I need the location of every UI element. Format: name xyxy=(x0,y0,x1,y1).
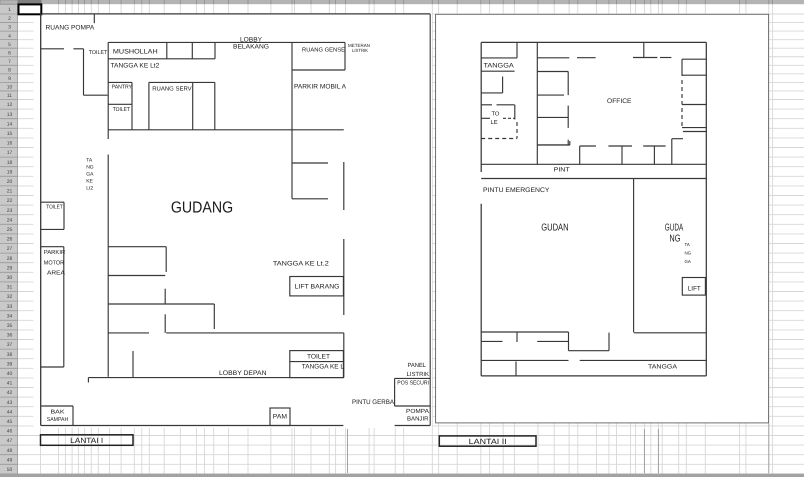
svg-text:TOILET: TOILET xyxy=(89,50,108,56)
svg-text:15: 15 xyxy=(7,131,13,137)
svg-text:34: 34 xyxy=(7,313,13,319)
svg-text:PANTRY: PANTRY xyxy=(112,85,133,91)
svg-text:36: 36 xyxy=(7,333,13,339)
svg-text:4: 4 xyxy=(8,33,11,39)
svg-text:TANGGA KE Lt2: TANGGA KE Lt2 xyxy=(111,62,160,69)
svg-text:45: 45 xyxy=(7,419,13,425)
svg-text:TOILET: TOILET xyxy=(46,205,63,211)
svg-text:20: 20 xyxy=(7,179,13,185)
svg-text:PAM: PAM xyxy=(273,413,287,420)
svg-text:BANJIR: BANJIR xyxy=(407,415,429,422)
svg-text:40: 40 xyxy=(7,371,13,377)
svg-text:42: 42 xyxy=(7,390,13,396)
svg-text:13: 13 xyxy=(7,112,13,118)
svg-text:LE: LE xyxy=(491,120,498,126)
svg-text:MOTOR: MOTOR xyxy=(44,260,64,267)
svg-text:30: 30 xyxy=(7,275,13,281)
svg-text:BAK: BAK xyxy=(51,409,65,415)
svg-text:2: 2 xyxy=(8,16,11,22)
svg-text:50: 50 xyxy=(7,467,13,473)
svg-text:43: 43 xyxy=(7,400,13,406)
svg-text:KE: KE xyxy=(86,179,93,185)
svg-text:29: 29 xyxy=(7,265,13,271)
svg-text:LISTRIK: LISTRIK xyxy=(407,371,430,378)
svg-text:NG: NG xyxy=(86,165,94,171)
svg-text:GUDAN: GUDAN xyxy=(541,222,568,233)
svg-text:48: 48 xyxy=(7,448,13,454)
svg-text:LIFT BARANG: LIFT BARANG xyxy=(295,284,340,291)
svg-text:PARKIR MOBIL A: PARKIR MOBIL A xyxy=(294,84,347,91)
svg-text:46: 46 xyxy=(7,429,13,435)
svg-text:38: 38 xyxy=(7,352,13,358)
svg-text:LANTAI II: LANTAI II xyxy=(469,437,507,446)
svg-text:18: 18 xyxy=(7,160,13,166)
svg-text:LIFT: LIFT xyxy=(688,286,701,293)
svg-text:NG: NG xyxy=(685,251,692,256)
svg-text:19: 19 xyxy=(7,169,13,175)
svg-text:RUANG GENSE: RUANG GENSE xyxy=(302,47,345,54)
svg-text:1: 1 xyxy=(8,7,11,13)
svg-text:6: 6 xyxy=(8,50,11,56)
svg-text:TOILET: TOILET xyxy=(307,354,330,361)
svg-text:23: 23 xyxy=(7,208,13,214)
svg-text:47: 47 xyxy=(7,438,13,444)
svg-text:LISTRIK: LISTRIK xyxy=(352,48,369,53)
svg-text:GUDA: GUDA xyxy=(665,223,684,234)
svg-text:TANGGA KE L: TANGGA KE L xyxy=(302,364,345,371)
svg-text:TA: TA xyxy=(685,242,690,247)
svg-text:7: 7 xyxy=(8,59,11,65)
svg-text:SAMPAH: SAMPAH xyxy=(47,417,68,423)
svg-text:MUSHOLLAH: MUSHOLLAH xyxy=(113,48,158,55)
svg-text:TOILET: TOILET xyxy=(113,107,131,113)
svg-text:TANGGA: TANGGA xyxy=(648,364,678,371)
svg-text:RUANG POMPA: RUANG POMPA xyxy=(46,25,95,32)
svg-text:10: 10 xyxy=(7,85,13,91)
svg-text:37: 37 xyxy=(7,342,13,348)
svg-text:PINTU GERBA: PINTU GERBA xyxy=(352,399,395,406)
svg-text:Lt2: Lt2 xyxy=(86,186,93,192)
svg-text:21: 21 xyxy=(7,189,13,195)
svg-text:12: 12 xyxy=(7,102,13,108)
svg-text:3: 3 xyxy=(8,25,11,31)
svg-text:11: 11 xyxy=(7,93,12,99)
svg-text:39: 39 xyxy=(7,361,13,367)
svg-text:27: 27 xyxy=(7,246,13,252)
svg-text:PINT: PINT xyxy=(554,167,570,174)
svg-text:49: 49 xyxy=(7,457,13,463)
svg-text:17: 17 xyxy=(7,150,13,156)
svg-text:NG: NG xyxy=(669,234,680,245)
svg-text:24: 24 xyxy=(7,217,13,223)
svg-text:POMPA: POMPA xyxy=(406,408,429,415)
svg-text:PANEL: PANEL xyxy=(408,362,427,369)
svg-text:5: 5 xyxy=(8,42,11,48)
svg-text:TANGGA: TANGGA xyxy=(484,62,515,69)
svg-text:8: 8 xyxy=(8,68,11,74)
svg-text:26: 26 xyxy=(7,237,13,243)
svg-text:14: 14 xyxy=(7,121,13,127)
svg-text:GA: GA xyxy=(86,172,94,178)
svg-text:BELAKANG: BELAKANG xyxy=(233,44,269,51)
svg-text:TA: TA xyxy=(86,158,93,164)
svg-text:OFFICE: OFFICE xyxy=(607,98,632,105)
svg-text:GUDANG: GUDANG xyxy=(171,199,233,216)
svg-text:35: 35 xyxy=(7,323,13,329)
svg-text:28: 28 xyxy=(7,256,13,262)
svg-text:44: 44 xyxy=(7,409,13,415)
svg-text:TANGGA KE Lt.2: TANGGA KE Lt.2 xyxy=(273,261,329,268)
svg-text:32: 32 xyxy=(7,294,13,300)
svg-text:16: 16 xyxy=(7,141,13,147)
svg-text:LANTAI I: LANTAI I xyxy=(70,436,103,445)
svg-text:PINTU EMERGENCY: PINTU EMERGENCY xyxy=(483,187,550,194)
svg-text:LOBBY DEPAN: LOBBY DEPAN xyxy=(219,370,267,377)
svg-text:GA: GA xyxy=(685,259,691,264)
svg-text:9: 9 xyxy=(8,76,11,82)
svg-text:41: 41 xyxy=(7,381,13,387)
svg-text:33: 33 xyxy=(7,304,13,310)
svg-text:LOBBY: LOBBY xyxy=(240,36,263,43)
svg-text:AREA: AREA xyxy=(47,269,65,276)
svg-text:25: 25 xyxy=(7,227,13,233)
svg-text:PARKIR: PARKIR xyxy=(44,249,65,256)
svg-text:22: 22 xyxy=(7,198,13,204)
svg-text:RUANG SERV: RUANG SERV xyxy=(152,85,192,92)
svg-text:POS SECURI: POS SECURI xyxy=(397,380,429,387)
svg-text:31: 31 xyxy=(7,285,13,291)
svg-text:TO: TO xyxy=(492,110,500,117)
